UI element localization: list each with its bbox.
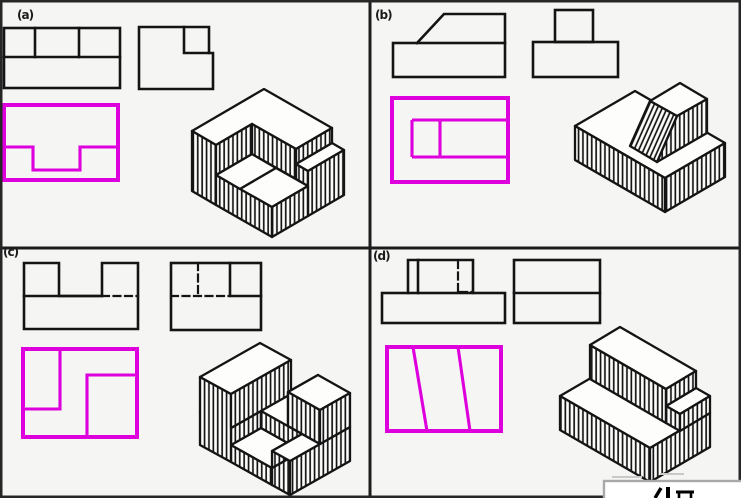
side-view-edge xyxy=(184,27,209,53)
panel-b-isometric-view xyxy=(575,83,725,212)
panel-c-side-view xyxy=(171,263,261,330)
panel-d-side-view xyxy=(514,260,600,323)
panel-a-side-view xyxy=(139,27,213,89)
panel-c-front-view xyxy=(24,263,138,329)
side-view-block xyxy=(555,10,593,42)
panel-d-top-view-highlighted xyxy=(387,347,501,431)
panel-d-front-view xyxy=(382,260,505,323)
panel-a-label: (a) xyxy=(17,8,34,22)
panel-b: (b) xyxy=(375,8,725,212)
highlight-view-edge xyxy=(87,375,137,437)
worksheet: (a) xyxy=(0,0,741,498)
panel-a-top-view-highlighted xyxy=(4,105,118,180)
highlight-view-notch xyxy=(4,147,118,170)
watermark-box xyxy=(604,481,741,498)
highlight-view-outline xyxy=(392,98,508,182)
panel-b-side-view xyxy=(533,10,618,77)
panel-c-top-view-highlighted xyxy=(23,349,137,437)
highlight-view-outline xyxy=(23,349,137,437)
front-view-wedge xyxy=(417,14,505,43)
panel-a-front-view xyxy=(4,28,120,88)
panel-b-top-view-highlighted xyxy=(392,98,508,182)
side-view-base xyxy=(533,42,618,77)
side-view-outline xyxy=(139,27,213,89)
highlight-view-edge xyxy=(23,349,60,409)
highlight-view-slant-edge xyxy=(458,347,470,431)
front-view-base xyxy=(393,43,505,77)
watermark xyxy=(604,474,741,498)
panel-b-front-view xyxy=(393,14,505,77)
drawing-canvas: (a) xyxy=(0,0,741,498)
highlight-view-outline xyxy=(387,347,501,431)
highlight-view-slant-edge xyxy=(413,347,427,431)
iso-front-face xyxy=(192,131,216,205)
panel-d-label: (d) xyxy=(373,249,390,263)
panel-d-isometric-view xyxy=(560,327,710,482)
side-view-edge xyxy=(230,263,261,296)
panel-d: (d) xyxy=(373,249,710,482)
side-view-outline xyxy=(514,260,600,323)
panel-c-isometric-view xyxy=(200,343,350,495)
panel-b-label: (b) xyxy=(375,8,392,22)
front-view-base xyxy=(382,293,505,323)
panel-a: (a) xyxy=(4,8,344,237)
highlight-view-edges xyxy=(412,120,508,157)
panel-c: (c) xyxy=(3,245,350,495)
panel-a-isometric-view xyxy=(192,89,344,237)
